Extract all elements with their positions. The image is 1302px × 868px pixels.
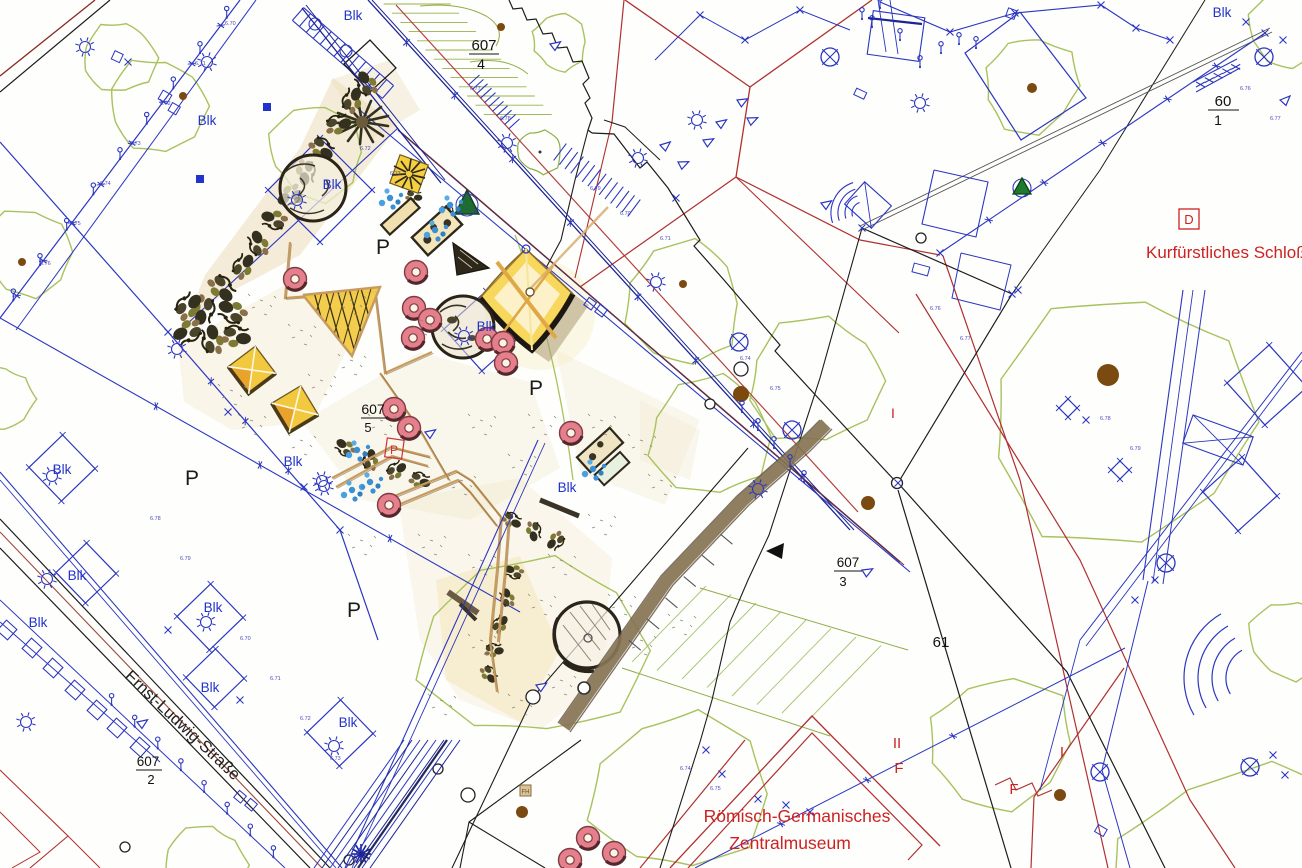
svg-text:II: II [893,735,901,752]
svg-text:F: F [1009,781,1018,798]
svg-text:Kurfürstliches Schloß: Kurfürstliches Schloß [1146,243,1302,262]
svg-text:4: 4 [477,56,485,72]
svg-text:6.71: 6.71 [195,61,206,67]
svg-text:6.78: 6.78 [150,516,161,522]
svg-text:3: 3 [839,574,846,589]
svg-text:Blk: Blk [198,113,217,128]
svg-text:6.77: 6.77 [1270,116,1281,122]
svg-text:6.75: 6.75 [710,786,721,792]
svg-text:6.71: 6.71 [660,236,671,242]
svg-text:Blk: Blk [204,600,223,615]
svg-text:P: P [185,467,199,490]
svg-text:Blk: Blk [323,177,342,192]
svg-text:Blk: Blk [53,462,72,477]
svg-text:Zentralmuseum: Zentralmuseum [729,833,851,853]
svg-text:Blk: Blk [201,680,220,695]
svg-text:6.74: 6.74 [100,181,111,187]
svg-text:I: I [1060,744,1064,761]
svg-text:6.79: 6.79 [590,186,601,192]
svg-text:6.73: 6.73 [390,171,401,177]
svg-text:P: P [529,377,543,400]
svg-text:Römisch-Germanisches: Römisch-Germanisches [704,806,891,826]
svg-text:607: 607 [471,37,496,54]
svg-text:FH: FH [522,790,530,796]
svg-text:Blk: Blk [558,480,577,495]
svg-text:6.76: 6.76 [1240,86,1251,92]
svg-text:6.79: 6.79 [180,556,191,562]
svg-text:1: 1 [1214,112,1222,128]
svg-text:P: P [390,443,398,457]
svg-text:6.76: 6.76 [40,261,51,267]
svg-text:Blk: Blk [68,568,87,583]
svg-text:6.76: 6.76 [930,306,941,312]
svg-text:Blk: Blk [477,319,496,334]
svg-text:5: 5 [364,420,371,435]
svg-text:6.73: 6.73 [330,756,341,762]
svg-text:D: D [1184,212,1193,227]
svg-text:6.73: 6.73 [130,141,141,147]
svg-text:607: 607 [137,754,160,769]
svg-text:6.72: 6.72 [360,146,371,152]
svg-text:2: 2 [147,772,154,787]
svg-text:6.70: 6.70 [225,21,236,27]
svg-text:6.74: 6.74 [740,356,751,362]
svg-text:P: P [376,236,390,259]
svg-text:60: 60 [1215,93,1232,110]
svg-text:F: F [894,760,903,777]
svg-text:6.70: 6.70 [240,636,251,642]
svg-text:6.78: 6.78 [500,116,511,122]
svg-text:Blk: Blk [1213,5,1232,20]
svg-text:607: 607 [361,401,385,417]
svg-text:6.79: 6.79 [1130,446,1141,452]
svg-text:P: P [347,599,361,622]
svg-text:6.78: 6.78 [1100,416,1111,422]
svg-text:6.77: 6.77 [960,336,971,342]
svg-text:6.75: 6.75 [70,221,81,227]
svg-text:Blk: Blk [29,615,48,630]
svg-text:6.70: 6.70 [620,211,631,217]
svg-text:Blk: Blk [344,8,363,23]
svg-text:6.72: 6.72 [300,716,311,722]
svg-text:6.77: 6.77 [470,86,481,92]
svg-text:6.72: 6.72 [160,101,171,107]
svg-text:6.71: 6.71 [270,676,281,682]
svg-text:Blk: Blk [284,454,303,469]
svg-text:Blk: Blk [339,715,358,730]
svg-text:607: 607 [837,555,860,570]
svg-text:61: 61 [933,634,950,651]
svg-text:6.75: 6.75 [770,386,781,392]
svg-text:I: I [891,405,895,421]
svg-text:6.74: 6.74 [680,766,691,772]
